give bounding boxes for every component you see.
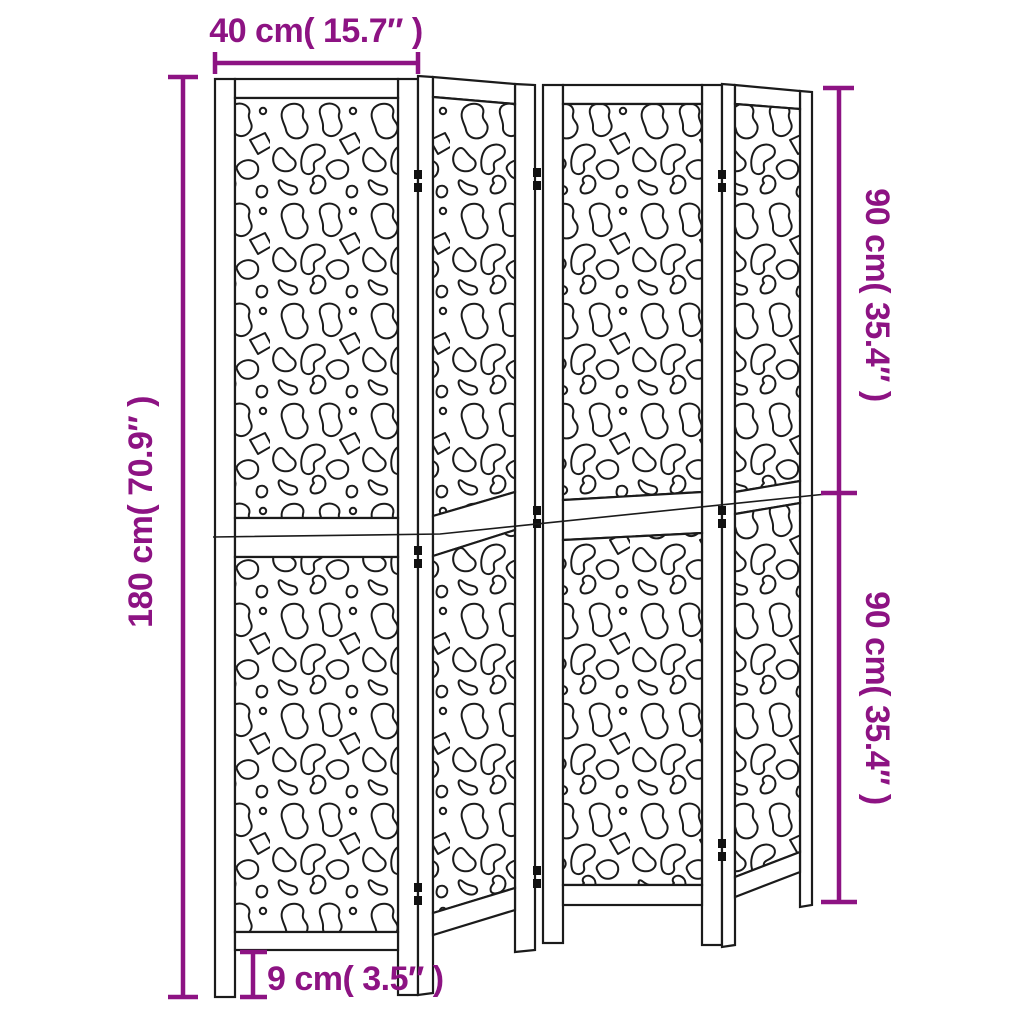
right-upper-dimension: 90 cm( 35.4″ ): [821, 88, 896, 493]
panel2-lower-cutout-insert: [433, 530, 515, 913]
top-width-dimension-label: 40 cm( 15.7″ ): [209, 12, 422, 50]
left-height-dimension-label: 180 cm( 70.9″ ): [122, 396, 160, 628]
panel1-mid-rail: [235, 518, 398, 557]
right-upper-dimension-label: 90 cm( 35.4″ ): [858, 188, 896, 401]
room-divider-dimension-diagram: 40 cm( 15.7″ ) 180 cm( 70.9″ ) 90 cm( 35…: [0, 0, 1024, 1024]
panel4-lower-cutout-insert: [735, 503, 800, 877]
divider-panel-4: [722, 84, 812, 947]
panel1-bottom-rail: [235, 932, 398, 950]
panel4-right-stile: [800, 91, 812, 907]
right-lower-dimension: 90 cm( 35.4″ ): [821, 493, 896, 902]
panel3-bottom-rail: [563, 885, 702, 905]
panel1-left-stile: [215, 79, 235, 997]
left-height-dimension: 180 cm( 70.9″ ): [122, 77, 198, 997]
panel2-left-stile: [418, 76, 433, 995]
panel1-lower-cutout-insert: [235, 557, 398, 932]
panel1-right-stile: [398, 79, 418, 995]
panel3-lower-cutout-insert: [563, 533, 702, 885]
panel4-left-stile: [722, 84, 735, 947]
panel1-upper-cutout-insert: [235, 98, 398, 518]
panel4-upper-cutout-insert: [735, 104, 800, 492]
right-lower-dimension-label: 90 cm( 35.4″ ): [858, 591, 896, 804]
divider-panel-1: [215, 79, 418, 997]
divider-panel-2: [418, 76, 535, 995]
leg-height-dimension-label: 9 cm( 3.5″ ): [267, 960, 444, 998]
panel2-upper-cutout-insert: [433, 97, 515, 516]
product-dimension-image: 40 cm( 15.7″ ) 180 cm( 70.9″ ) 90 cm( 35…: [0, 0, 1024, 1024]
panel1-top-rail: [235, 79, 398, 98]
top-width-dimension: 40 cm( 15.7″ ): [209, 12, 422, 74]
panel3-top-rail: [563, 85, 702, 104]
divider-panel-3: [543, 85, 722, 945]
panel3-left-stile: [543, 85, 563, 943]
panel2-right-stile: [515, 84, 535, 952]
panel3-mid-rail: [563, 492, 702, 540]
panel3-upper-cutout-insert: [563, 104, 702, 500]
